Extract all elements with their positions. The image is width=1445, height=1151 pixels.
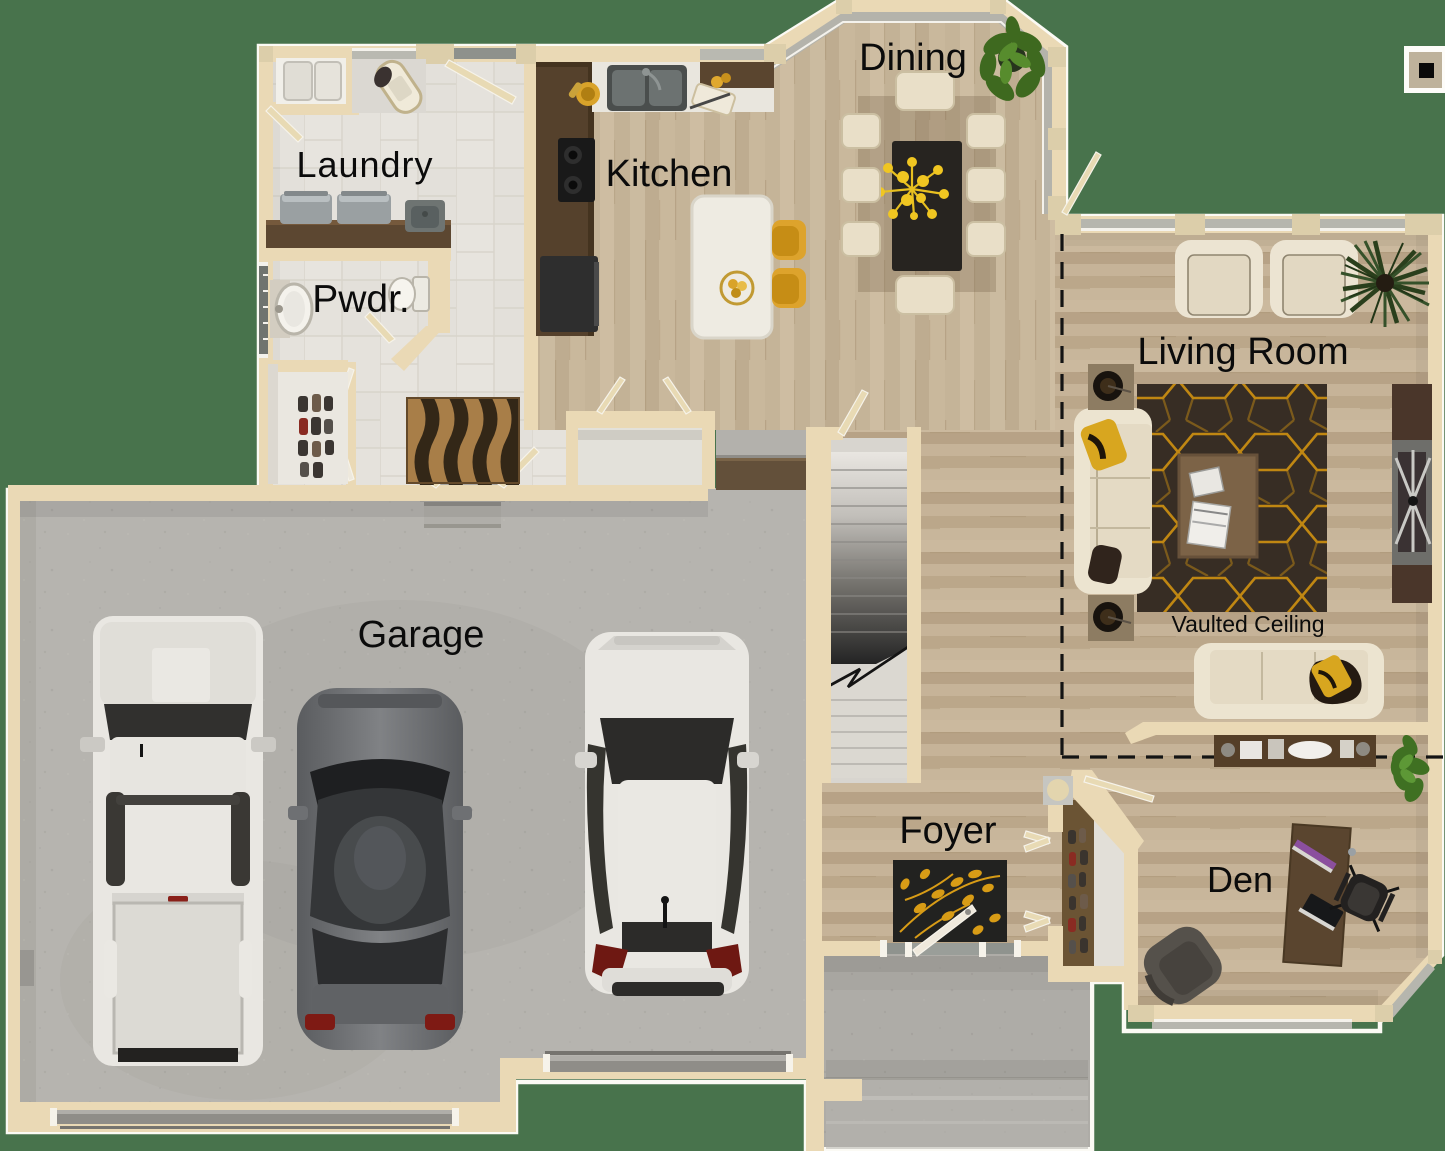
svg-text:Pwdr.: Pwdr. [312,278,410,321]
svg-text:Vaulted Ceiling: Vaulted Ceiling [1171,611,1324,637]
svg-text:Laundry: Laundry [296,144,433,185]
svg-text:Garage: Garage [358,614,485,656]
svg-text:Foyer: Foyer [899,810,996,852]
svg-text:Living Room: Living Room [1137,331,1348,373]
svg-text:Kitchen: Kitchen [606,153,733,195]
svg-text:Den: Den [1207,859,1273,900]
svg-text:Dining: Dining [859,37,967,79]
